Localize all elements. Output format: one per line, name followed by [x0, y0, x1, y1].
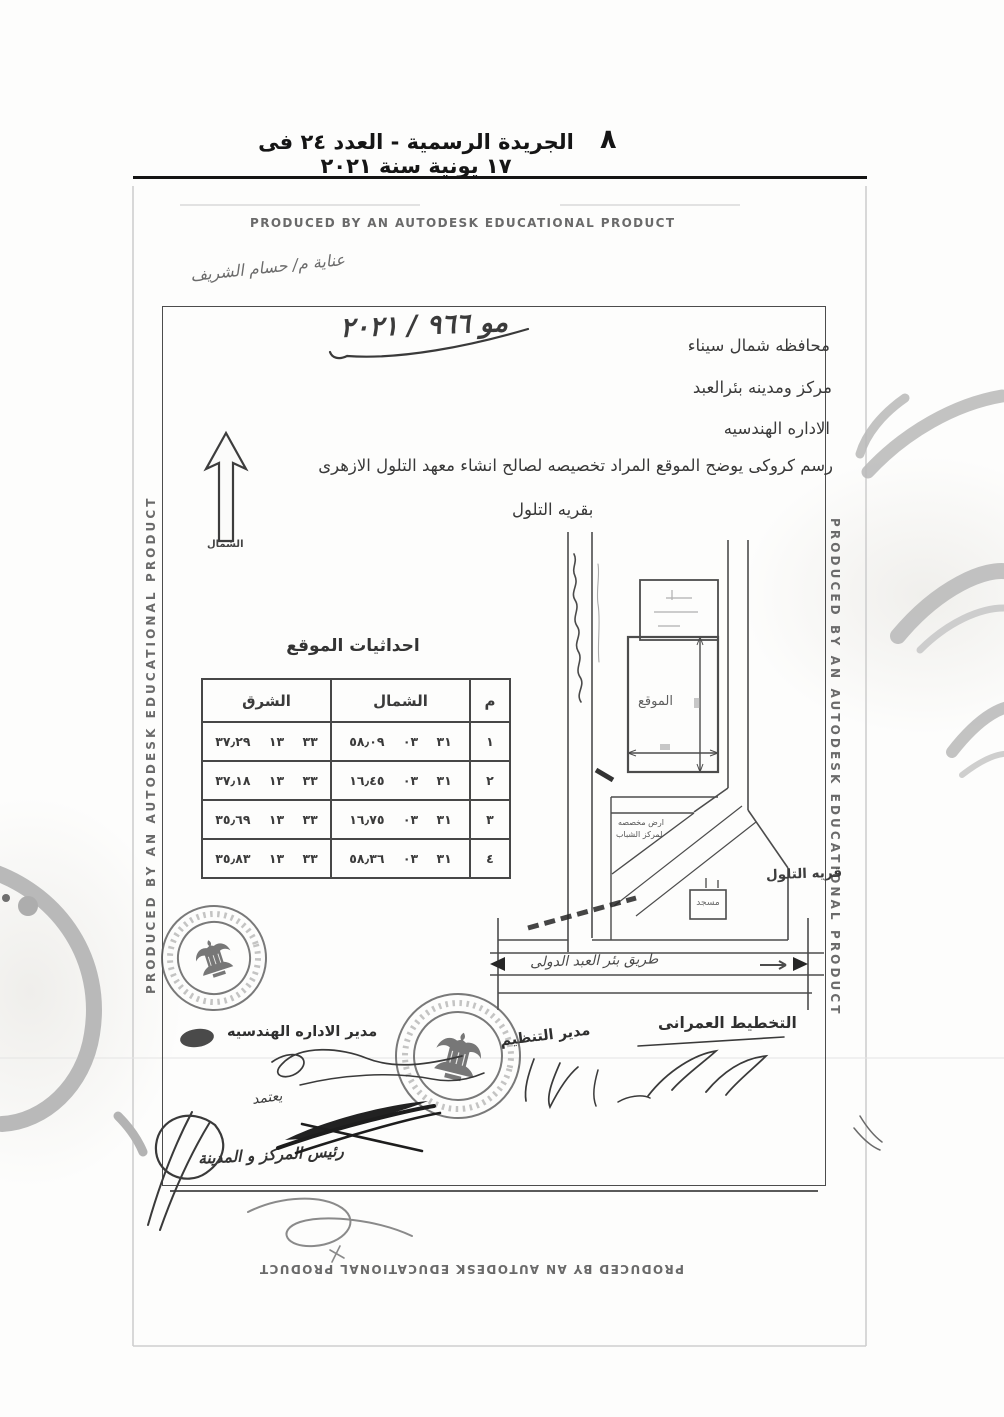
- signature-ink: [148, 329, 882, 1262]
- official-stamp-1: [148, 892, 279, 1023]
- scanned-gazette-page: الجريدة الرسمية - العدد ٢٤ فى ١٧ يونية س…: [0, 0, 1004, 1417]
- ink-blob: [179, 1027, 215, 1050]
- stamps-and-signatures-layer: [0, 0, 1004, 1417]
